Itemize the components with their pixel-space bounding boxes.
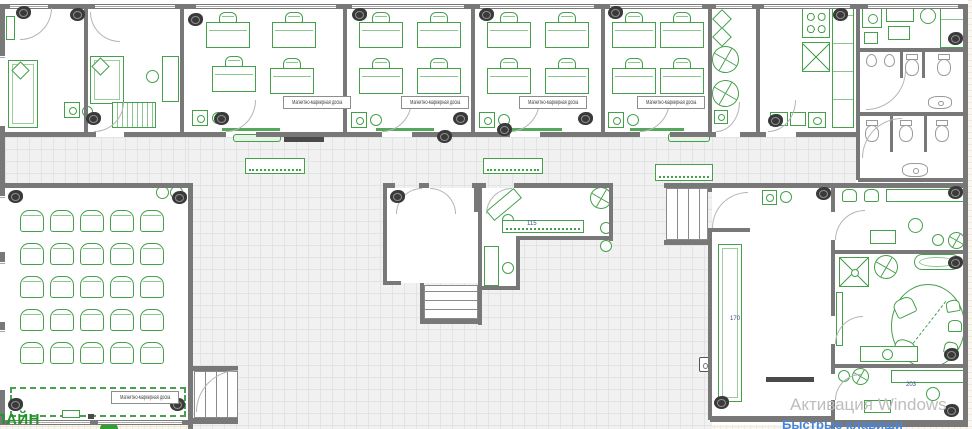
urinal [866,54,877,67]
student-desk [612,22,656,48]
dome-camera-icon [944,348,959,361]
staircase [424,285,478,319]
dome-camera-icon [833,8,848,21]
marker-board-label-text: Магнитно-маркерная доска [528,100,578,106]
wall [124,132,226,137]
wall [601,4,605,132]
toilet [936,54,952,76]
student-desk [270,68,314,94]
window [0,56,5,126]
windows-activation-watermark: Активация Windows [790,395,947,415]
marker-board [630,128,684,131]
wall [0,132,96,137]
dome-camera-icon [948,32,963,45]
furniture [6,16,15,40]
wall [514,183,613,188]
window [98,421,182,424]
window [716,5,752,8]
student-desk [359,22,403,48]
student-desk [612,68,656,94]
chair [945,299,961,313]
hall-floor-grid [5,137,188,183]
wall [858,48,968,52]
marker-board-label-text: Магнитно-маркерная доска [646,100,696,106]
sink [479,112,495,128]
wall [835,250,968,254]
auditorium-chair [140,342,164,364]
auditorium-chair [50,342,74,364]
wall [670,132,716,137]
chair [864,189,879,202]
sink [862,8,882,28]
student-desk [359,68,403,94]
auditorium-chair [80,342,104,364]
wall [664,240,709,245]
dome-camera-icon [608,6,623,19]
auditorium-chair [140,309,164,331]
wall [516,240,520,288]
dome-camera-icon [86,112,101,125]
staircase [666,188,708,240]
urinal [884,54,895,67]
wall [412,132,510,137]
student-desk [417,68,461,94]
auditorium-chair [50,276,74,298]
wall-screen [284,137,324,142]
wall [831,344,835,374]
hotkeys-link[interactable]: Быстрые клавиши [782,417,903,429]
dome-camera-icon [8,398,23,411]
wall [708,4,712,132]
wall [922,52,925,78]
auditorium-chair [140,210,164,232]
wall [383,281,401,285]
kitchen-sink [802,42,830,72]
toilet [904,54,920,76]
window [196,5,336,8]
dome-camera-icon [714,396,729,409]
auditorium-chair [50,243,74,265]
wall [516,236,613,240]
wall [712,183,835,188]
marker-board-label: Магнитно-маркерная доска [283,96,351,109]
dimension-label: 170 [730,316,760,324]
auditorium-chair [20,243,44,265]
student-desk [545,68,589,94]
auditorium-chair [110,210,134,232]
washbasin [928,96,952,109]
stove [802,8,830,38]
hall-floor-grid [188,137,712,429]
floor-plan-canvas: Магнитно-маркерная доскаМагнитно-маркерн… [0,0,972,429]
window [95,5,175,8]
dome-camera-icon [479,8,494,21]
auditorium-chair [110,342,134,364]
student-desk [660,22,704,48]
wall [756,4,760,132]
toilet [934,120,950,142]
chair [842,189,857,202]
auditorium-chair [140,276,164,298]
wall [609,183,613,241]
auditorium-chair [110,309,134,331]
auditorium-chair [80,309,104,331]
auditorium-chair [50,309,74,331]
dimension-label: 203 [906,382,936,390]
furniture [484,246,499,286]
stool [600,240,612,252]
dome-camera-icon [768,114,783,127]
marker-board-label: Магнитно-маркерная доска [401,96,469,109]
wall [471,4,475,132]
window [610,5,702,8]
wall [420,283,424,323]
furniture [62,410,80,418]
wall-screen [88,414,94,419]
sink [192,110,208,126]
stool [920,8,936,24]
marker-board-label-text: Магнитно-маркерная доска [410,100,460,106]
auditorium-chair [80,210,104,232]
wall [712,228,750,232]
wall [796,132,858,137]
wall [478,183,482,325]
wall [708,228,712,420]
auditorium-chair [50,210,74,232]
dome-camera-icon [437,130,452,143]
wall-screen [766,377,814,382]
window [0,262,5,322]
window [868,5,958,8]
furniture [162,56,179,102]
dimension-label: 115 [527,221,557,229]
wall [858,178,968,182]
dome-camera-icon [948,186,963,199]
wall [256,132,382,137]
stool [146,70,159,83]
dome-camera-icon [948,256,963,269]
hall-floor-grid [712,137,856,183]
square-table [839,257,869,287]
student-desk [660,68,704,94]
auditorium-chair [20,276,44,298]
wall [664,183,709,188]
wall [192,418,238,424]
window [0,196,5,252]
wall [383,188,387,283]
logo-text: ЛАЙН [0,411,40,428]
dome-camera-icon [172,191,187,204]
student-desk [206,22,250,48]
stool [908,218,923,233]
furniture [864,32,878,44]
wall [740,132,766,137]
marker-board-label: Магнитно-маркерная доска [111,391,179,404]
wall [835,364,968,368]
dome-camera-icon [453,112,468,125]
dome-camera-icon [390,190,405,203]
window [0,330,5,390]
marker-board-label: Магнитно-маркерная доска [519,96,587,109]
auditorium-chair [140,243,164,265]
auditorium-chair [80,276,104,298]
dome-camera-icon [16,6,31,19]
student-desk [272,22,316,48]
marker-board-label-text: Магнитно-маркерная доска [120,395,170,401]
bench [245,158,305,174]
window [352,5,464,8]
wall [343,4,347,132]
wall [84,4,88,132]
wall [180,4,184,132]
wall [856,4,860,180]
auditorium-chair [20,309,44,331]
wall [478,286,520,290]
student-desk [212,66,256,92]
bench [655,164,713,181]
dome-camera-icon [578,112,593,125]
student-desk [487,68,531,94]
auditorium-chair [110,243,134,265]
dome-camera-icon [816,187,831,200]
stool [627,114,639,126]
kitchen-counter [832,6,854,128]
sink [808,112,826,128]
marker-board-label: Магнитно-маркерная доска [637,96,705,109]
chair [948,320,962,332]
dome-camera-icon [497,123,512,136]
dome-camera-icon [188,13,203,26]
wall [858,112,968,116]
wall [420,319,482,324]
stool [502,262,514,274]
furniture [888,26,910,40]
dome-camera-icon [352,8,367,21]
wall [835,183,968,188]
furniture [870,230,896,244]
student-desk [417,22,461,48]
washbasin [902,163,928,177]
window [480,5,594,8]
wall [478,183,486,188]
student-desk [545,22,589,48]
auditorium-chair [20,210,44,232]
sink [608,112,624,128]
wall [188,183,193,429]
sink [351,112,367,128]
stool [370,114,382,126]
dome-camera-icon [214,112,229,125]
wall [924,116,927,152]
sink [762,190,777,205]
stool [882,349,893,360]
student-desk [487,22,531,48]
marker-board-label-text: Магнитно-маркерная доска [292,100,342,106]
auditorium-chair [80,243,104,265]
wall [0,183,192,188]
stool [932,234,944,246]
wall [540,132,640,137]
auditorium-chair [20,342,44,364]
auditorium-chair [110,276,134,298]
dome-camera-icon [70,8,85,21]
bench [483,158,543,174]
sink [64,102,80,118]
stool [780,191,792,203]
dome-camera-icon [8,190,23,203]
